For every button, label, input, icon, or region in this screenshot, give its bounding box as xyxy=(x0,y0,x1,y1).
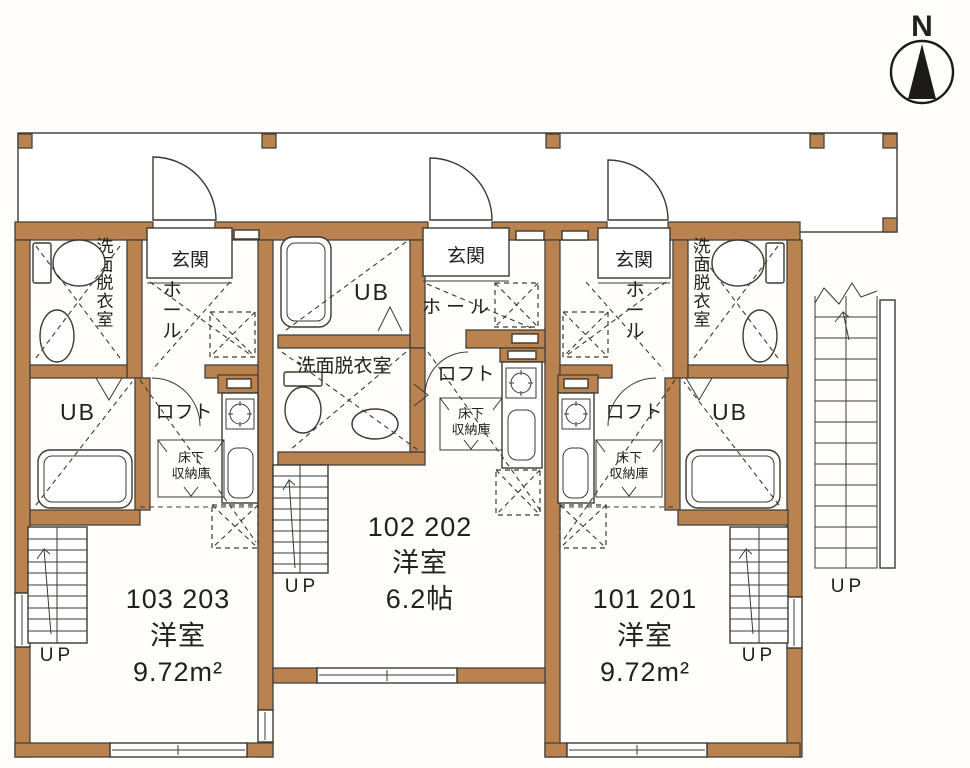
room-type: 洋室 xyxy=(617,621,673,651)
unit-numbers: 102 202 xyxy=(368,512,473,542)
north-label: N xyxy=(911,10,933,43)
bathtub-icon xyxy=(281,237,331,327)
unit-middle: 玄関 ホール 洗面脱衣室 UB ロフト 床下 収納庫 xyxy=(273,228,542,614)
up-label: UP xyxy=(285,576,319,597)
floor-plan-page: 玄関 ホール 洗面脱衣室 UB ロフト 床下 収納庫 xyxy=(0,0,970,768)
stairs-icon xyxy=(730,527,788,643)
room-type: 洋室 xyxy=(150,621,206,651)
hatched-opening-icon xyxy=(496,470,540,515)
hatched-opening-icon xyxy=(560,505,606,548)
stairs-icon xyxy=(273,465,328,573)
corridor-post xyxy=(546,134,560,148)
bathtub-icon xyxy=(686,450,780,508)
up-label: UP xyxy=(40,645,74,666)
vent-icon xyxy=(227,379,251,388)
storage-label: 収納庫 xyxy=(609,466,648,481)
room-size: 9.72m² xyxy=(133,657,223,687)
hatched-opening-icon xyxy=(563,312,608,357)
unit-room-label: 102 202 洋室 6.2帖 xyxy=(368,512,473,614)
window-icon xyxy=(567,743,707,757)
toilet-icon xyxy=(284,372,322,433)
north-compass-icon: N xyxy=(891,10,953,103)
unit-numbers: 103 203 xyxy=(126,584,231,614)
room-label-genkan: 玄関 xyxy=(447,245,485,267)
room-label-hall: ホール xyxy=(625,280,644,342)
vent-icon xyxy=(562,231,588,240)
compass-needle xyxy=(908,44,936,99)
room-label-hall: ホール xyxy=(422,297,494,318)
hatched-opening-icon xyxy=(495,283,538,327)
underfloor-storage-icon: 床下 収納庫 xyxy=(158,440,224,497)
storage-label: 床下 xyxy=(616,450,642,465)
up-label: UP xyxy=(742,645,776,666)
storage-label: 収納庫 xyxy=(171,466,210,481)
vent-icon xyxy=(512,334,538,343)
window-icon xyxy=(317,668,457,683)
room-label-bath: UB xyxy=(354,279,390,305)
stair-rail xyxy=(880,300,895,568)
corridor-post xyxy=(810,134,824,148)
room-size: 6.2帖 xyxy=(386,584,455,614)
bathtub-icon xyxy=(38,450,132,508)
hatched-opening-icon xyxy=(212,505,258,548)
window-icon xyxy=(110,743,247,757)
vent-icon xyxy=(234,230,259,239)
toilet-icon xyxy=(712,240,784,286)
unit-room-label: 103 203 洋室 9.72m² xyxy=(126,584,231,687)
window-icon xyxy=(787,597,802,648)
room-label-genkan: 玄関 xyxy=(615,249,653,271)
room-label-hall: ホール xyxy=(162,280,181,342)
room-label-washroom: 洗面脱衣室 xyxy=(694,237,711,329)
toilet-icon xyxy=(33,240,105,286)
unit-room-label: 101 201 洋室 9.72m² xyxy=(593,584,698,687)
room-label-loft: ロフト xyxy=(155,402,212,423)
folding-door-icon xyxy=(378,307,402,331)
underfloor-storage-icon: 床下 収納庫 xyxy=(440,398,502,450)
floor-plan-canvas: 玄関 ホール 洗面脱衣室 UB ロフト 床下 収納庫 xyxy=(0,0,970,768)
stairs-icon xyxy=(28,527,87,643)
kitchen-counter xyxy=(222,393,258,503)
folding-door-icon xyxy=(96,378,122,400)
vent-icon xyxy=(516,231,544,240)
vent-icon xyxy=(508,351,536,359)
washbasin-icon xyxy=(743,310,777,362)
corridor-post xyxy=(18,134,32,148)
underfloor-storage-icon: 床下 収納庫 xyxy=(596,440,662,497)
room-label-loft: ロフト xyxy=(437,364,494,385)
washbasin-icon xyxy=(40,310,74,362)
vent-icon xyxy=(564,379,588,388)
kitchen-counter xyxy=(558,393,594,503)
kitchen-counter xyxy=(502,362,542,468)
hatched-opening-icon xyxy=(210,312,255,357)
storage-label: 収納庫 xyxy=(451,422,490,437)
unit-numbers: 101 201 xyxy=(593,584,698,614)
room-label-bath: UB xyxy=(712,399,748,425)
room-label-genkan: 玄関 xyxy=(171,249,209,271)
storage-label: 床下 xyxy=(178,450,204,465)
corridor-post xyxy=(883,218,897,232)
exterior-staircase: UP xyxy=(815,283,895,597)
up-label: UP xyxy=(831,576,865,597)
window-icon xyxy=(258,710,273,742)
room-size: 9.72m² xyxy=(600,657,690,687)
room-label-loft: ロフト xyxy=(605,402,662,423)
corridor-post xyxy=(262,134,276,148)
washbasin-icon xyxy=(352,409,398,439)
room-type: 洋室 xyxy=(392,548,448,578)
room-label-bath: UB xyxy=(60,399,96,425)
corridor-post xyxy=(883,134,897,148)
